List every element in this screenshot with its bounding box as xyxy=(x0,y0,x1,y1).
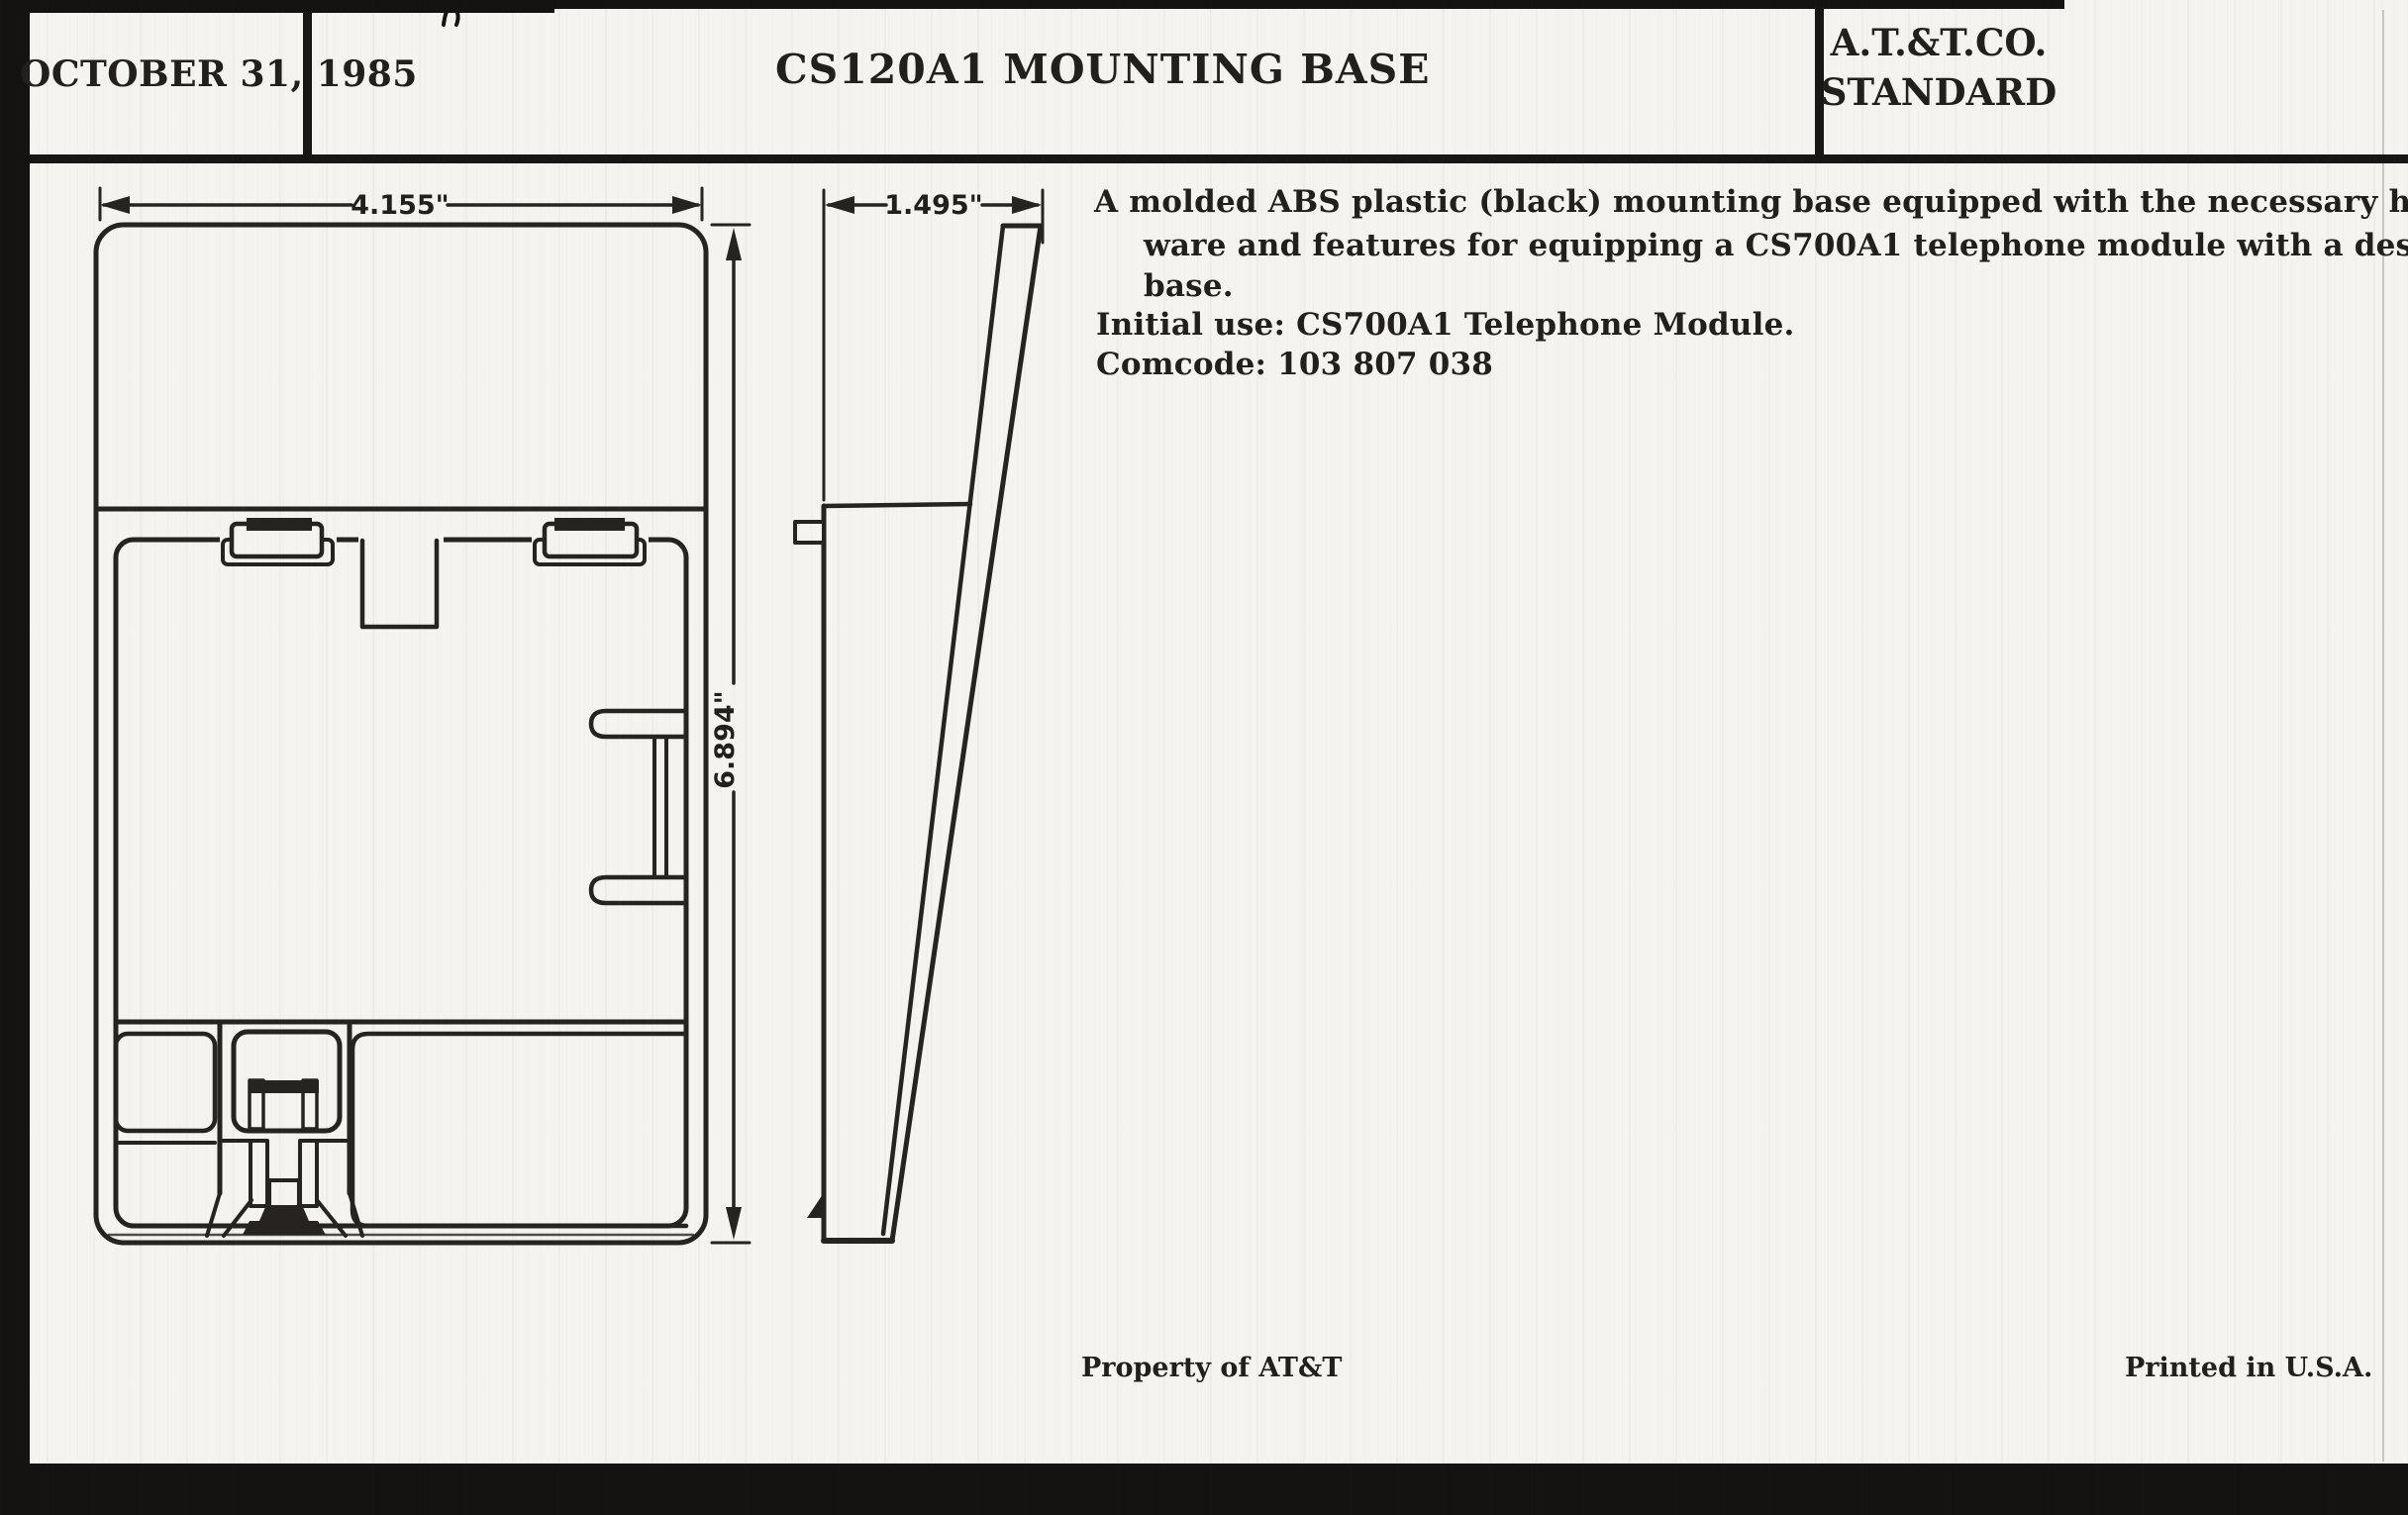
side-view-drawing xyxy=(795,226,1041,1241)
scan-squiggle xyxy=(444,7,458,25)
height-dimension-label: 6.894" xyxy=(710,690,741,788)
front-center-tab xyxy=(362,541,437,627)
front-cord-hook xyxy=(591,711,686,903)
front-bottom-section xyxy=(109,1022,693,1236)
depth-dimension-label: 1.495" xyxy=(884,190,982,221)
front-latch-left xyxy=(223,518,333,564)
front-view-drawing xyxy=(96,225,706,1243)
spec-card-page: OCTOBER 31, 1985 CS120A1 MOUNTING BASE A… xyxy=(0,0,2408,1515)
front-latch-right xyxy=(535,518,645,564)
side-latch-tab xyxy=(795,522,824,543)
side-foot-catch xyxy=(807,1191,825,1218)
technical-drawing: 4.155" 6.894" 1.495" xyxy=(0,0,2408,1515)
width-dimension-label: 4.155" xyxy=(351,190,449,221)
